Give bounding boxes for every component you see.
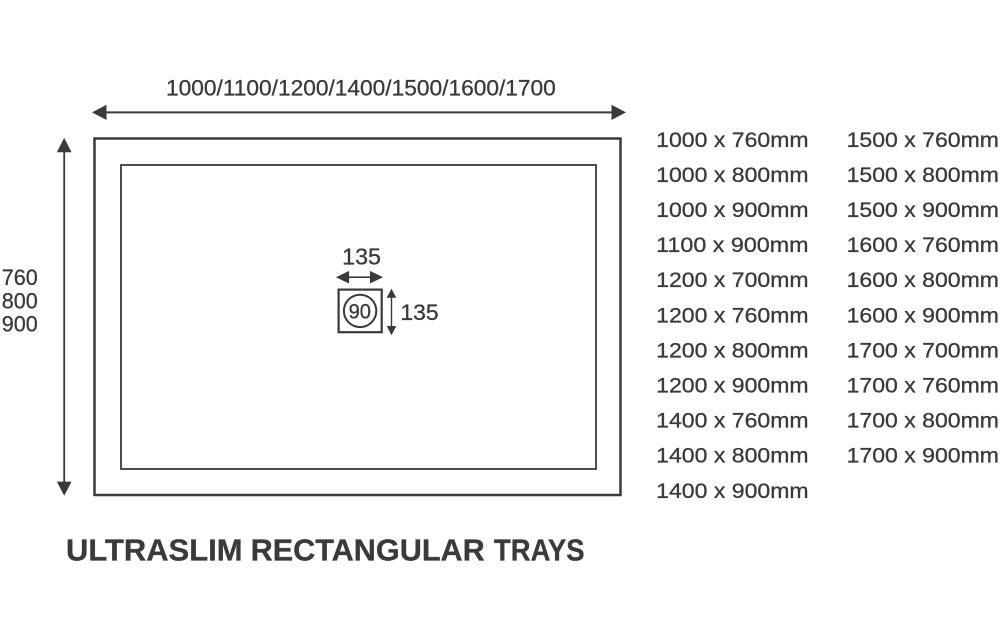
svg-text:1400 x 760mm: 1400 x 760mm <box>656 410 808 433</box>
svg-text:1400 x 800mm: 1400 x 800mm <box>656 445 808 468</box>
svg-text:RECTANGULAR: RECTANGULAR <box>251 533 485 568</box>
svg-text:ULTRASLIM: ULTRASLIM <box>66 533 243 568</box>
svg-text:90: 90 <box>349 300 371 324</box>
svg-text:1200 x 700mm: 1200 x 700mm <box>656 269 808 292</box>
svg-text:1700 x 900mm: 1700 x 900mm <box>847 445 999 468</box>
svg-text:1500 x 760mm: 1500 x 760mm <box>847 129 999 152</box>
svg-text:1000 x 760mm: 1000 x 760mm <box>656 129 808 152</box>
svg-text:1700 x 800mm: 1700 x 800mm <box>847 410 999 433</box>
svg-text:1000 x 900mm: 1000 x 900mm <box>656 199 808 222</box>
svg-text:1200 x 760mm: 1200 x 760mm <box>656 304 808 327</box>
svg-text:1600 x 800mm: 1600 x 800mm <box>847 269 999 292</box>
svg-text:800: 800 <box>2 289 38 314</box>
svg-text:1200 x 900mm: 1200 x 900mm <box>656 375 808 398</box>
svg-text:1700 x 700mm: 1700 x 700mm <box>847 339 999 362</box>
svg-text:135: 135 <box>400 300 438 325</box>
svg-text:1500 x 900mm: 1500 x 900mm <box>847 199 999 222</box>
svg-text:135: 135 <box>342 244 381 270</box>
svg-text:1000 x 800mm: 1000 x 800mm <box>656 164 808 187</box>
svg-text:1500 x 800mm: 1500 x 800mm <box>847 164 999 187</box>
svg-text:1600 x 900mm: 1600 x 900mm <box>847 304 999 327</box>
svg-text:1100 x 900mm: 1100 x 900mm <box>656 234 808 257</box>
svg-text:1200 x 800mm: 1200 x 800mm <box>656 339 808 362</box>
svg-text:760: 760 <box>2 265 38 290</box>
svg-text:TRAYS: TRAYS <box>494 533 585 568</box>
svg-text:1600 x 760mm: 1600 x 760mm <box>847 234 999 257</box>
svg-text:1000/1100/1200/1400/1500/1600/: 1000/1100/1200/1400/1500/1600/1700 <box>166 75 556 100</box>
svg-text:900: 900 <box>2 312 38 337</box>
svg-text:1700 x 760mm: 1700 x 760mm <box>847 375 999 398</box>
svg-text:1400 x 900mm: 1400 x 900mm <box>656 480 808 503</box>
